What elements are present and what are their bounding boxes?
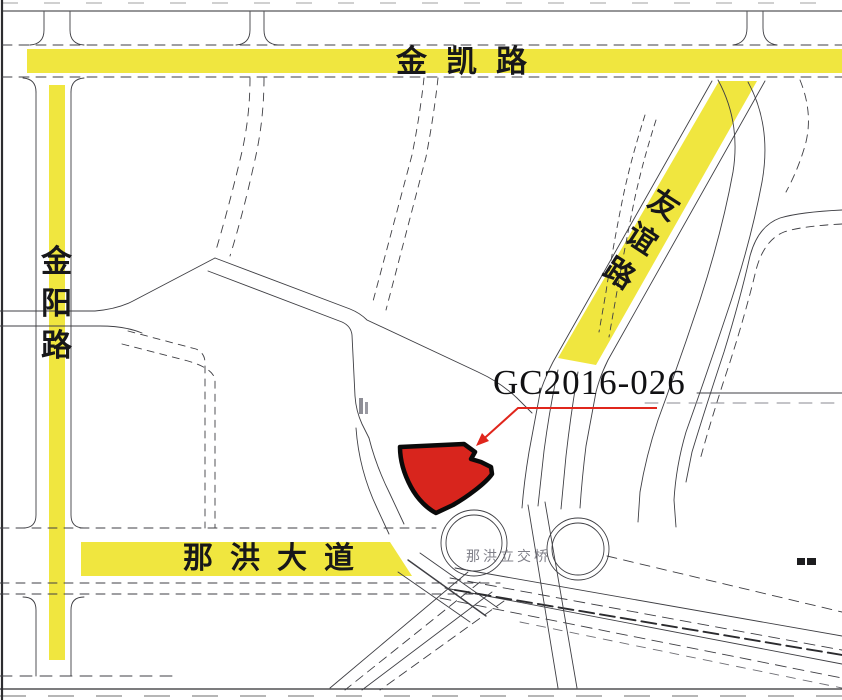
road-label-jinyang-char: 金 <box>41 246 72 277</box>
parcel-gc2016-026 <box>400 444 492 513</box>
highlighted-roads <box>27 49 842 660</box>
map-drawing <box>0 0 842 700</box>
parcel-location-map: 金凯路 金 阳 路 友 谊 路 那洪大道 GC2016-026 那洪立交桥 <box>0 0 842 700</box>
jinyang-road-highlight <box>49 85 65 660</box>
interchange-label: 那洪立交桥 <box>466 549 551 563</box>
parcel-id-label: GC2016-026 <box>493 365 686 400</box>
road-label-nahong: 那洪大道 <box>183 544 371 574</box>
road-label-jinyang-char: 阳 <box>41 288 72 319</box>
road-label-jinyang: 金 阳 路 <box>41 246 72 361</box>
leader-line <box>478 408 657 444</box>
road-label-jinyang-char: 路 <box>41 330 72 361</box>
parcel-annotation <box>400 408 657 513</box>
road-label-jinkai: 金凯路 <box>396 46 546 77</box>
